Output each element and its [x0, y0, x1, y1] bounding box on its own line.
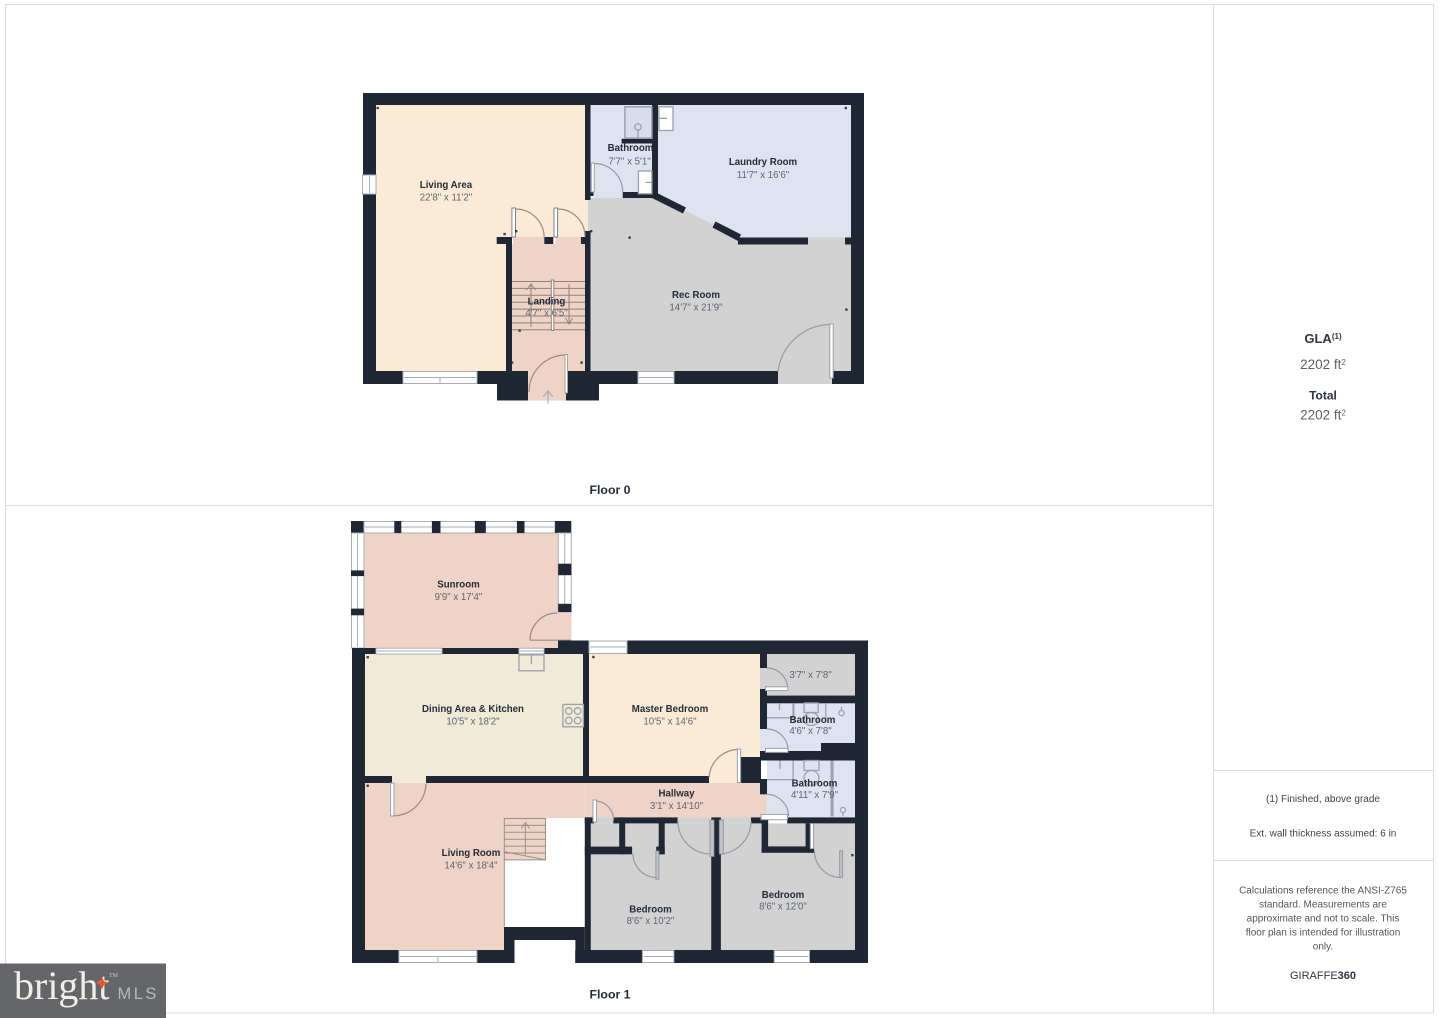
svg-text:Bathroom: Bathroom [608, 143, 654, 154]
svg-text:Dining Area & Kitchen: Dining Area & Kitchen [422, 704, 524, 715]
svg-text:2202 ft2: 2202 ft2 [1300, 408, 1346, 423]
svg-text:2202 ft2: 2202 ft2 [1300, 357, 1346, 372]
svg-text:standard. Measurements are: standard. Measurements are [1259, 900, 1387, 911]
svg-text:Laundry Room: Laundry Room [729, 157, 798, 168]
svg-text:10'5" x 14'6": 10'5" x 14'6" [643, 717, 697, 728]
svg-text:4'11" x 7'9": 4'11" x 7'9" [791, 790, 839, 801]
svg-text:Sunroom: Sunroom [437, 580, 480, 591]
svg-text:Living Room: Living Room [442, 848, 501, 859]
svg-text:bright: bright [14, 963, 110, 1008]
svg-text:Master Bedroom: Master Bedroom [632, 704, 709, 715]
svg-text:Calculations reference the ANS: Calculations reference the ANSI-Z765 [1239, 886, 1407, 897]
svg-text:7'7" x 5'1": 7'7" x 5'1" [608, 157, 651, 168]
svg-text:Living Area: Living Area [420, 180, 473, 191]
svg-text:approximate and not to scale.: approximate and not to scale. This [1247, 914, 1400, 925]
svg-text:Landing: Landing [528, 297, 566, 308]
svg-text:3'1" x 14'10": 3'1" x 14'10" [650, 801, 704, 812]
svg-text:4'6" x 7'8": 4'6" x 7'8" [789, 726, 832, 737]
svg-text:Bedroom: Bedroom [629, 905, 672, 916]
svg-text:10'5" x 18'2": 10'5" x 18'2" [446, 717, 500, 728]
svg-text:MLS: MLS [118, 985, 159, 1003]
svg-text:8'6" x 12'0": 8'6" x 12'0" [759, 902, 807, 913]
svg-text:Rec Room: Rec Room [672, 290, 720, 301]
svg-text:floor plan is intended for ill: floor plan is intended for illustration [1246, 928, 1401, 939]
svg-text:Floor 1: Floor 1 [590, 988, 631, 1002]
svg-text:Hallway: Hallway [658, 789, 695, 800]
svg-text:GIRAFFE360: GIRAFFE360 [1290, 970, 1356, 982]
svg-text:Ext. wall thickness assumed: 6: Ext. wall thickness assumed: 6 in [1250, 829, 1397, 840]
svg-text:8'6" x 10'2": 8'6" x 10'2" [627, 916, 675, 927]
svg-text:4'7" x 6'5": 4'7" x 6'5" [525, 308, 568, 319]
svg-text:Bedroom: Bedroom [762, 890, 805, 901]
svg-text:Bathroom: Bathroom [792, 779, 838, 790]
svg-text:(1) Finished, above grade: (1) Finished, above grade [1266, 794, 1380, 805]
svg-text:Floor 0: Floor 0 [590, 483, 631, 497]
svg-text:11'7" x 16'6": 11'7" x 16'6" [737, 170, 790, 181]
svg-text:TM: TM [109, 973, 119, 979]
svg-text:14'7" x 21'9": 14'7" x 21'9" [669, 303, 723, 314]
svg-text:Bathroom: Bathroom [790, 715, 836, 726]
svg-text:14'6" x 18'4": 14'6" x 18'4" [444, 861, 498, 872]
svg-text:only.: only. [1313, 942, 1333, 953]
svg-text:3'7" x 7'8": 3'7" x 7'8" [789, 670, 832, 681]
svg-text:9'9" x 17'4": 9'9" x 17'4" [435, 592, 483, 603]
svg-text:Total: Total [1309, 389, 1337, 403]
svg-text:22'8" x 11'2": 22'8" x 11'2" [420, 193, 473, 204]
